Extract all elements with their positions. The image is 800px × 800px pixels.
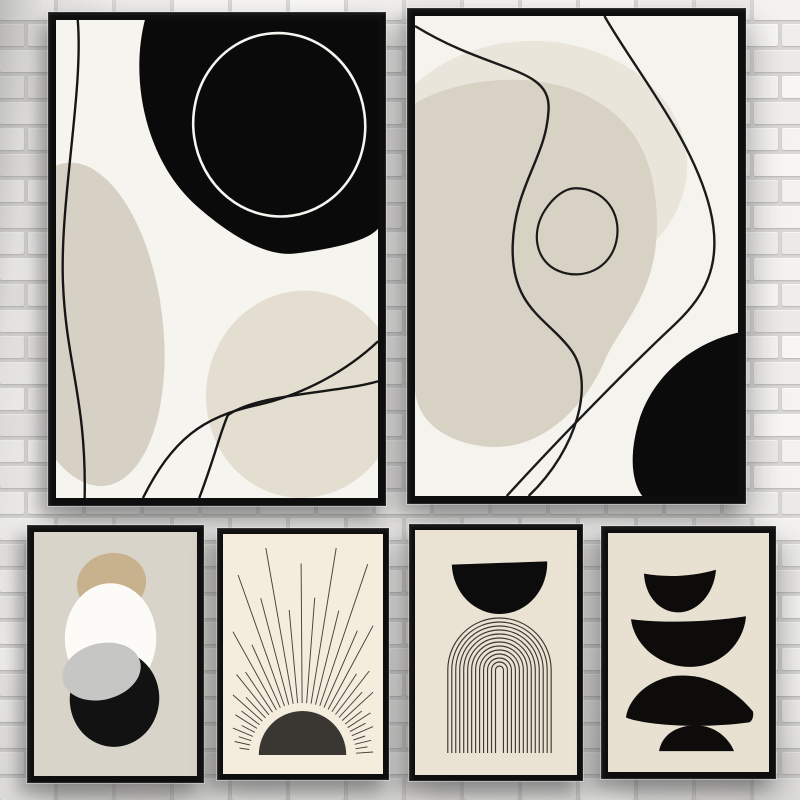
brick [580,778,634,800]
brick [0,102,54,124]
brick [754,310,800,332]
brick [232,778,286,800]
brick [754,154,800,176]
poster-sunrise [217,528,389,780]
brick [0,50,54,72]
brick [782,596,800,618]
brick [0,388,24,410]
brick [754,778,800,800]
brick [348,778,402,800]
brick [0,258,54,280]
brick [0,752,24,774]
brick [782,232,800,254]
brick [0,700,24,722]
brick [0,180,24,202]
brick [754,0,800,20]
brick [0,648,24,670]
brick [754,414,800,436]
brick [0,232,24,254]
brick [0,362,54,384]
brick [782,284,800,306]
brick [0,24,24,46]
poster-stacked-shapes [27,525,204,783]
brick [782,544,800,566]
brick [782,24,800,46]
brick [782,492,800,514]
brick [0,414,54,436]
brick [0,76,24,98]
brick [782,752,800,774]
brick [782,128,800,150]
brick [406,778,460,800]
poster-abstract-beige-blob [407,8,746,504]
brick [782,440,800,462]
gallery-wall-photo [0,0,800,800]
brick [0,466,54,488]
brick [0,544,24,566]
brick [0,310,54,332]
poster-balanced-pebbles [601,526,776,779]
brick [754,466,800,488]
brick [782,648,800,670]
brick [0,128,24,150]
poster-dome-arches [409,524,583,781]
brick [0,336,24,358]
brick [754,206,800,228]
brick [0,492,24,514]
brick [0,440,24,462]
brick [0,284,24,306]
brick [638,778,692,800]
brick [754,102,800,124]
brick [0,0,54,20]
brick [754,258,800,280]
brick [0,596,24,618]
brick [754,362,800,384]
brick [0,154,54,176]
poster-abstract-black-blob [48,12,386,506]
brick [522,778,576,800]
brick [0,206,54,228]
brick [782,76,800,98]
brick [754,50,800,72]
brick [782,180,800,202]
brick [782,388,800,410]
brick [782,700,800,722]
brick [782,336,800,358]
brick [290,778,344,800]
brick [696,778,750,800]
brick [464,778,518,800]
